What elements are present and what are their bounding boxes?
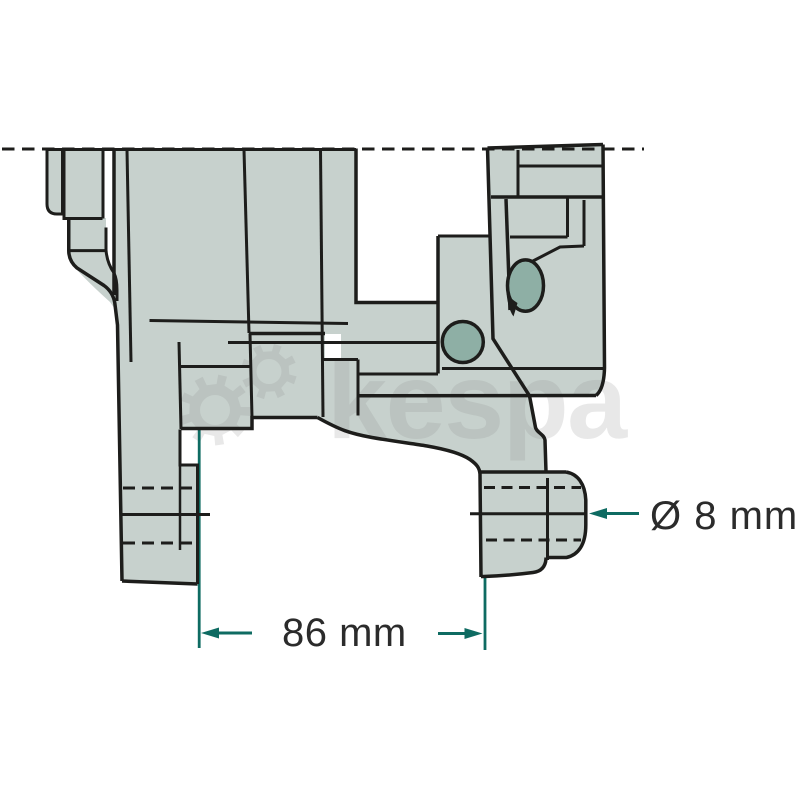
svg-text:Ø 8 mm: Ø 8 mm (650, 494, 798, 538)
svg-text:86 mm: 86 mm (282, 611, 407, 655)
